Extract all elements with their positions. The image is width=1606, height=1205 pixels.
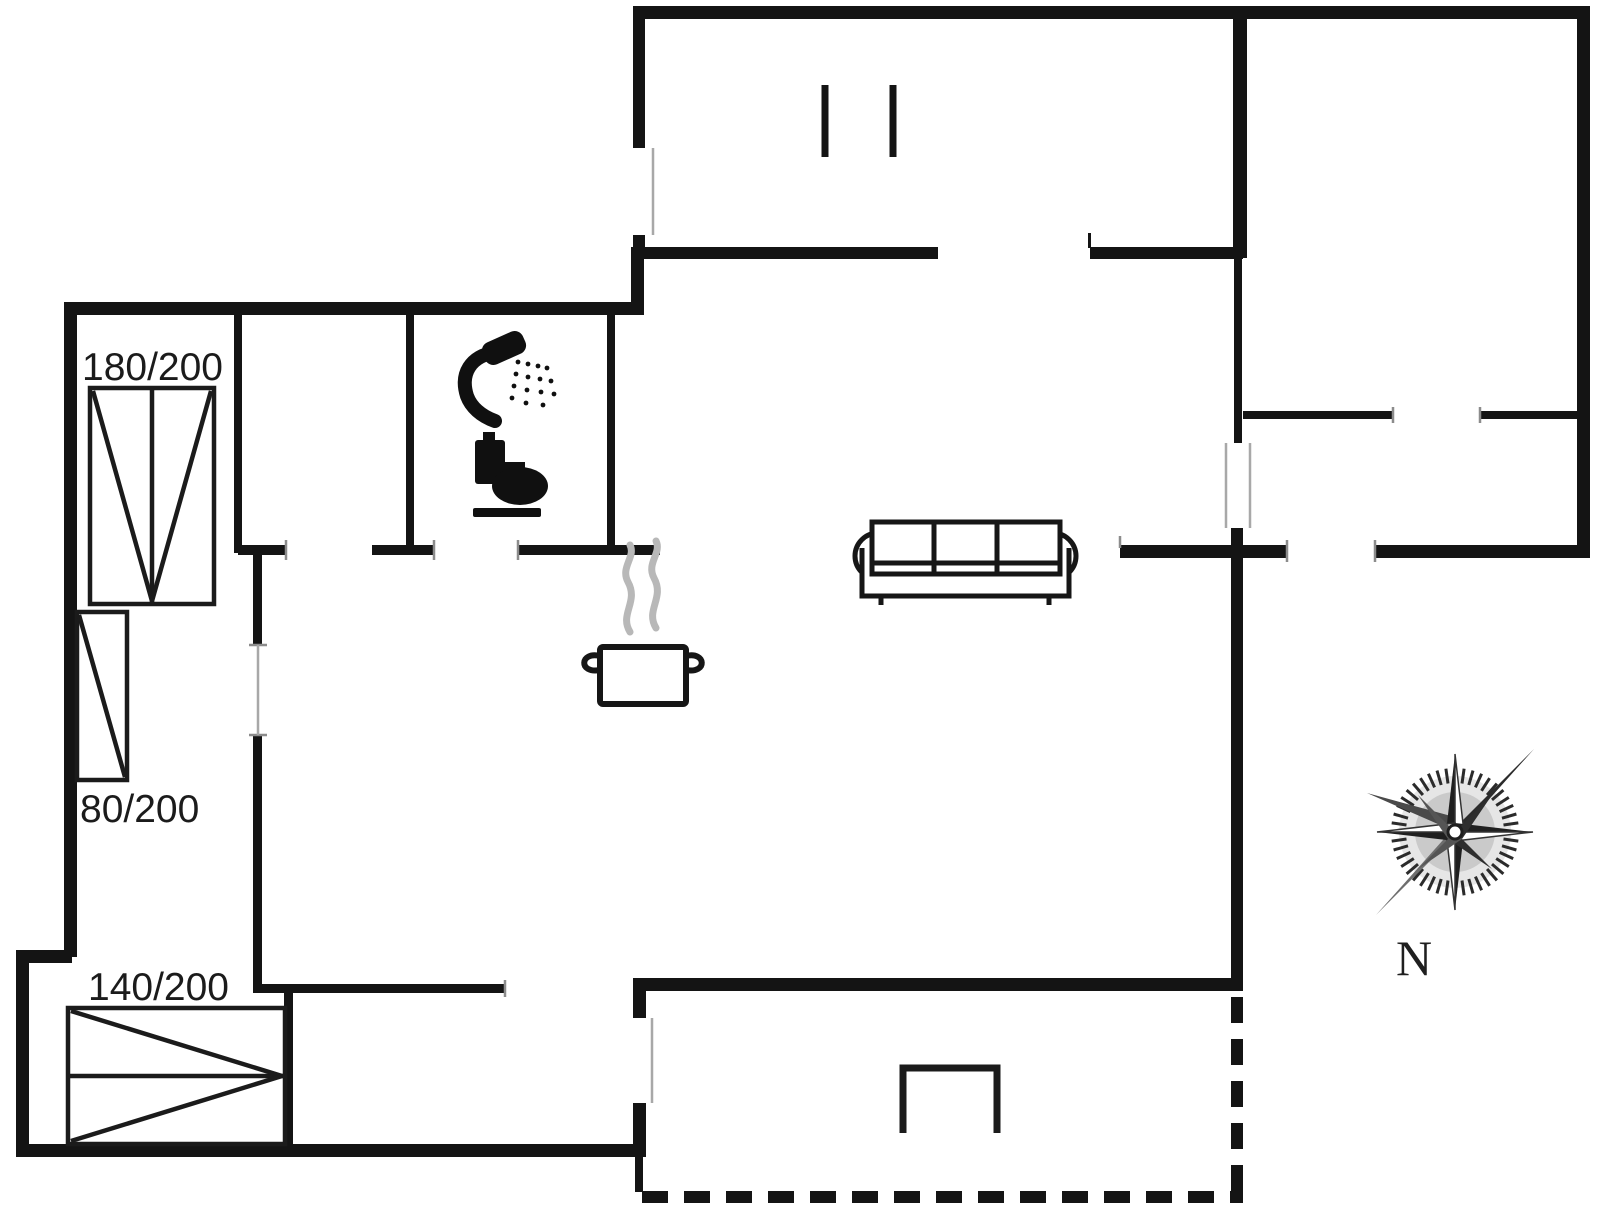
wardrobe-marks <box>825 85 893 157</box>
single-bed-80-icon <box>77 612 127 780</box>
compass-rose-icon <box>1367 749 1534 915</box>
exterior-walls <box>16 6 1590 1157</box>
interior-walls <box>234 233 1590 1151</box>
door-openings <box>249 407 1480 997</box>
double-bed-180-icon <box>90 388 214 604</box>
shower-icon <box>465 328 557 421</box>
bed-label-140-200: 140/200 <box>88 966 229 1009</box>
windows <box>652 148 1250 1103</box>
steam-line <box>652 541 658 628</box>
floor-plan: 180/200 80/200 140/200 <box>0 0 1606 1205</box>
sofa-icon <box>855 522 1076 605</box>
cooking-pot-icon <box>584 541 702 704</box>
bed-label-80-200: 80/200 <box>80 788 199 831</box>
steam-line <box>626 545 632 632</box>
terrace-step <box>903 1068 997 1133</box>
toilet-icon <box>473 432 548 517</box>
bed-label-180-200: 180/200 <box>82 346 223 389</box>
terrace-dashed-boundary <box>639 997 1243 1197</box>
shower-spray-dots <box>510 360 557 408</box>
north-label: N <box>1396 930 1432 986</box>
double-bed-140-icon <box>68 1008 285 1144</box>
